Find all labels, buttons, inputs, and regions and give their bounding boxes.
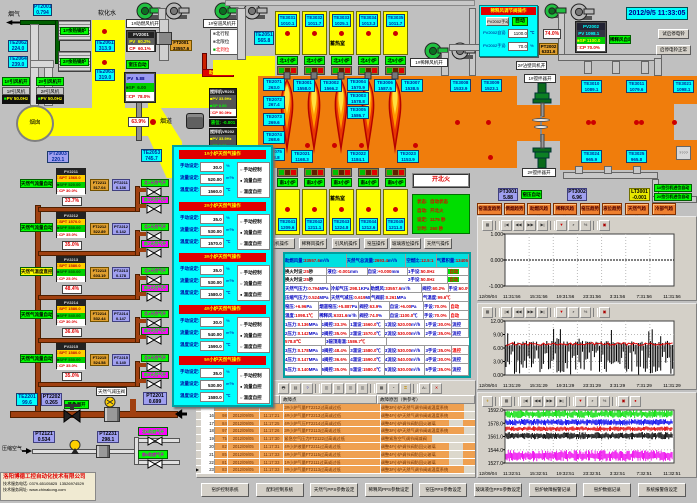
svg-text:23:31:56: 23:31:56 <box>583 294 601 299</box>
svg-text:0.00: 0.00 <box>493 373 503 379</box>
svg-text:3:31:56: 3:31:56 <box>610 294 626 299</box>
svg-text:6.00: 6.00 <box>493 346 503 352</box>
svg-text:15:31:29: 15:31:29 <box>530 383 548 388</box>
svg-text:1561.0: 1561.0 <box>488 435 504 441</box>
svg-text:7:32:51: 7:32:51 <box>637 471 653 476</box>
svg-text:1.000: 1.000 <box>490 232 503 238</box>
svg-text:1527.0: 1527.0 <box>488 461 504 467</box>
svg-text:12.00: 12.00 <box>490 319 503 325</box>
svg-text:11:32:51: 11:32:51 <box>663 471 681 476</box>
svg-text:19:31:56: 19:31:56 <box>556 294 574 299</box>
svg-text:11:31:29: 11:31:29 <box>663 383 681 388</box>
svg-text:15:31:56: 15:31:56 <box>530 294 548 299</box>
svg-text:9.00: 9.00 <box>493 333 503 339</box>
svg-text:15:32:51: 15:32:51 <box>530 471 548 476</box>
svg-text:12/09/04: 12/09/04 <box>479 471 497 476</box>
svg-text:1578.0: 1578.0 <box>488 421 504 427</box>
svg-text:12/09/04: 12/09/04 <box>479 383 497 388</box>
svg-text:19:32:51: 19:32:51 <box>556 471 574 476</box>
svg-text:7:31:29: 7:31:29 <box>637 383 653 388</box>
svg-text:3:32:51: 3:32:51 <box>610 471 626 476</box>
svg-text:23:31:29: 23:31:29 <box>583 383 601 388</box>
svg-text:1544.0: 1544.0 <box>488 448 504 454</box>
svg-text:12/09/04: 12/09/04 <box>479 294 497 299</box>
svg-text:11:32:51: 11:32:51 <box>503 471 521 476</box>
svg-text:-1.000: -1.000 <box>489 284 503 290</box>
svg-text:23:32:51: 23:32:51 <box>583 471 601 476</box>
svg-text:11:31:56: 11:31:56 <box>503 294 521 299</box>
svg-text:11:31:56: 11:31:56 <box>663 294 681 299</box>
svg-text:7:31:56: 7:31:56 <box>637 294 653 299</box>
svg-text:3.00: 3.00 <box>493 360 503 366</box>
svg-text:1592.0: 1592.0 <box>488 408 504 414</box>
svg-text:19:31:29: 19:31:29 <box>556 383 574 388</box>
svg-text:11:31:29: 11:31:29 <box>503 383 521 388</box>
svg-text:0.000: 0.000 <box>490 258 503 264</box>
svg-text:3:31:29: 3:31:29 <box>610 383 626 388</box>
